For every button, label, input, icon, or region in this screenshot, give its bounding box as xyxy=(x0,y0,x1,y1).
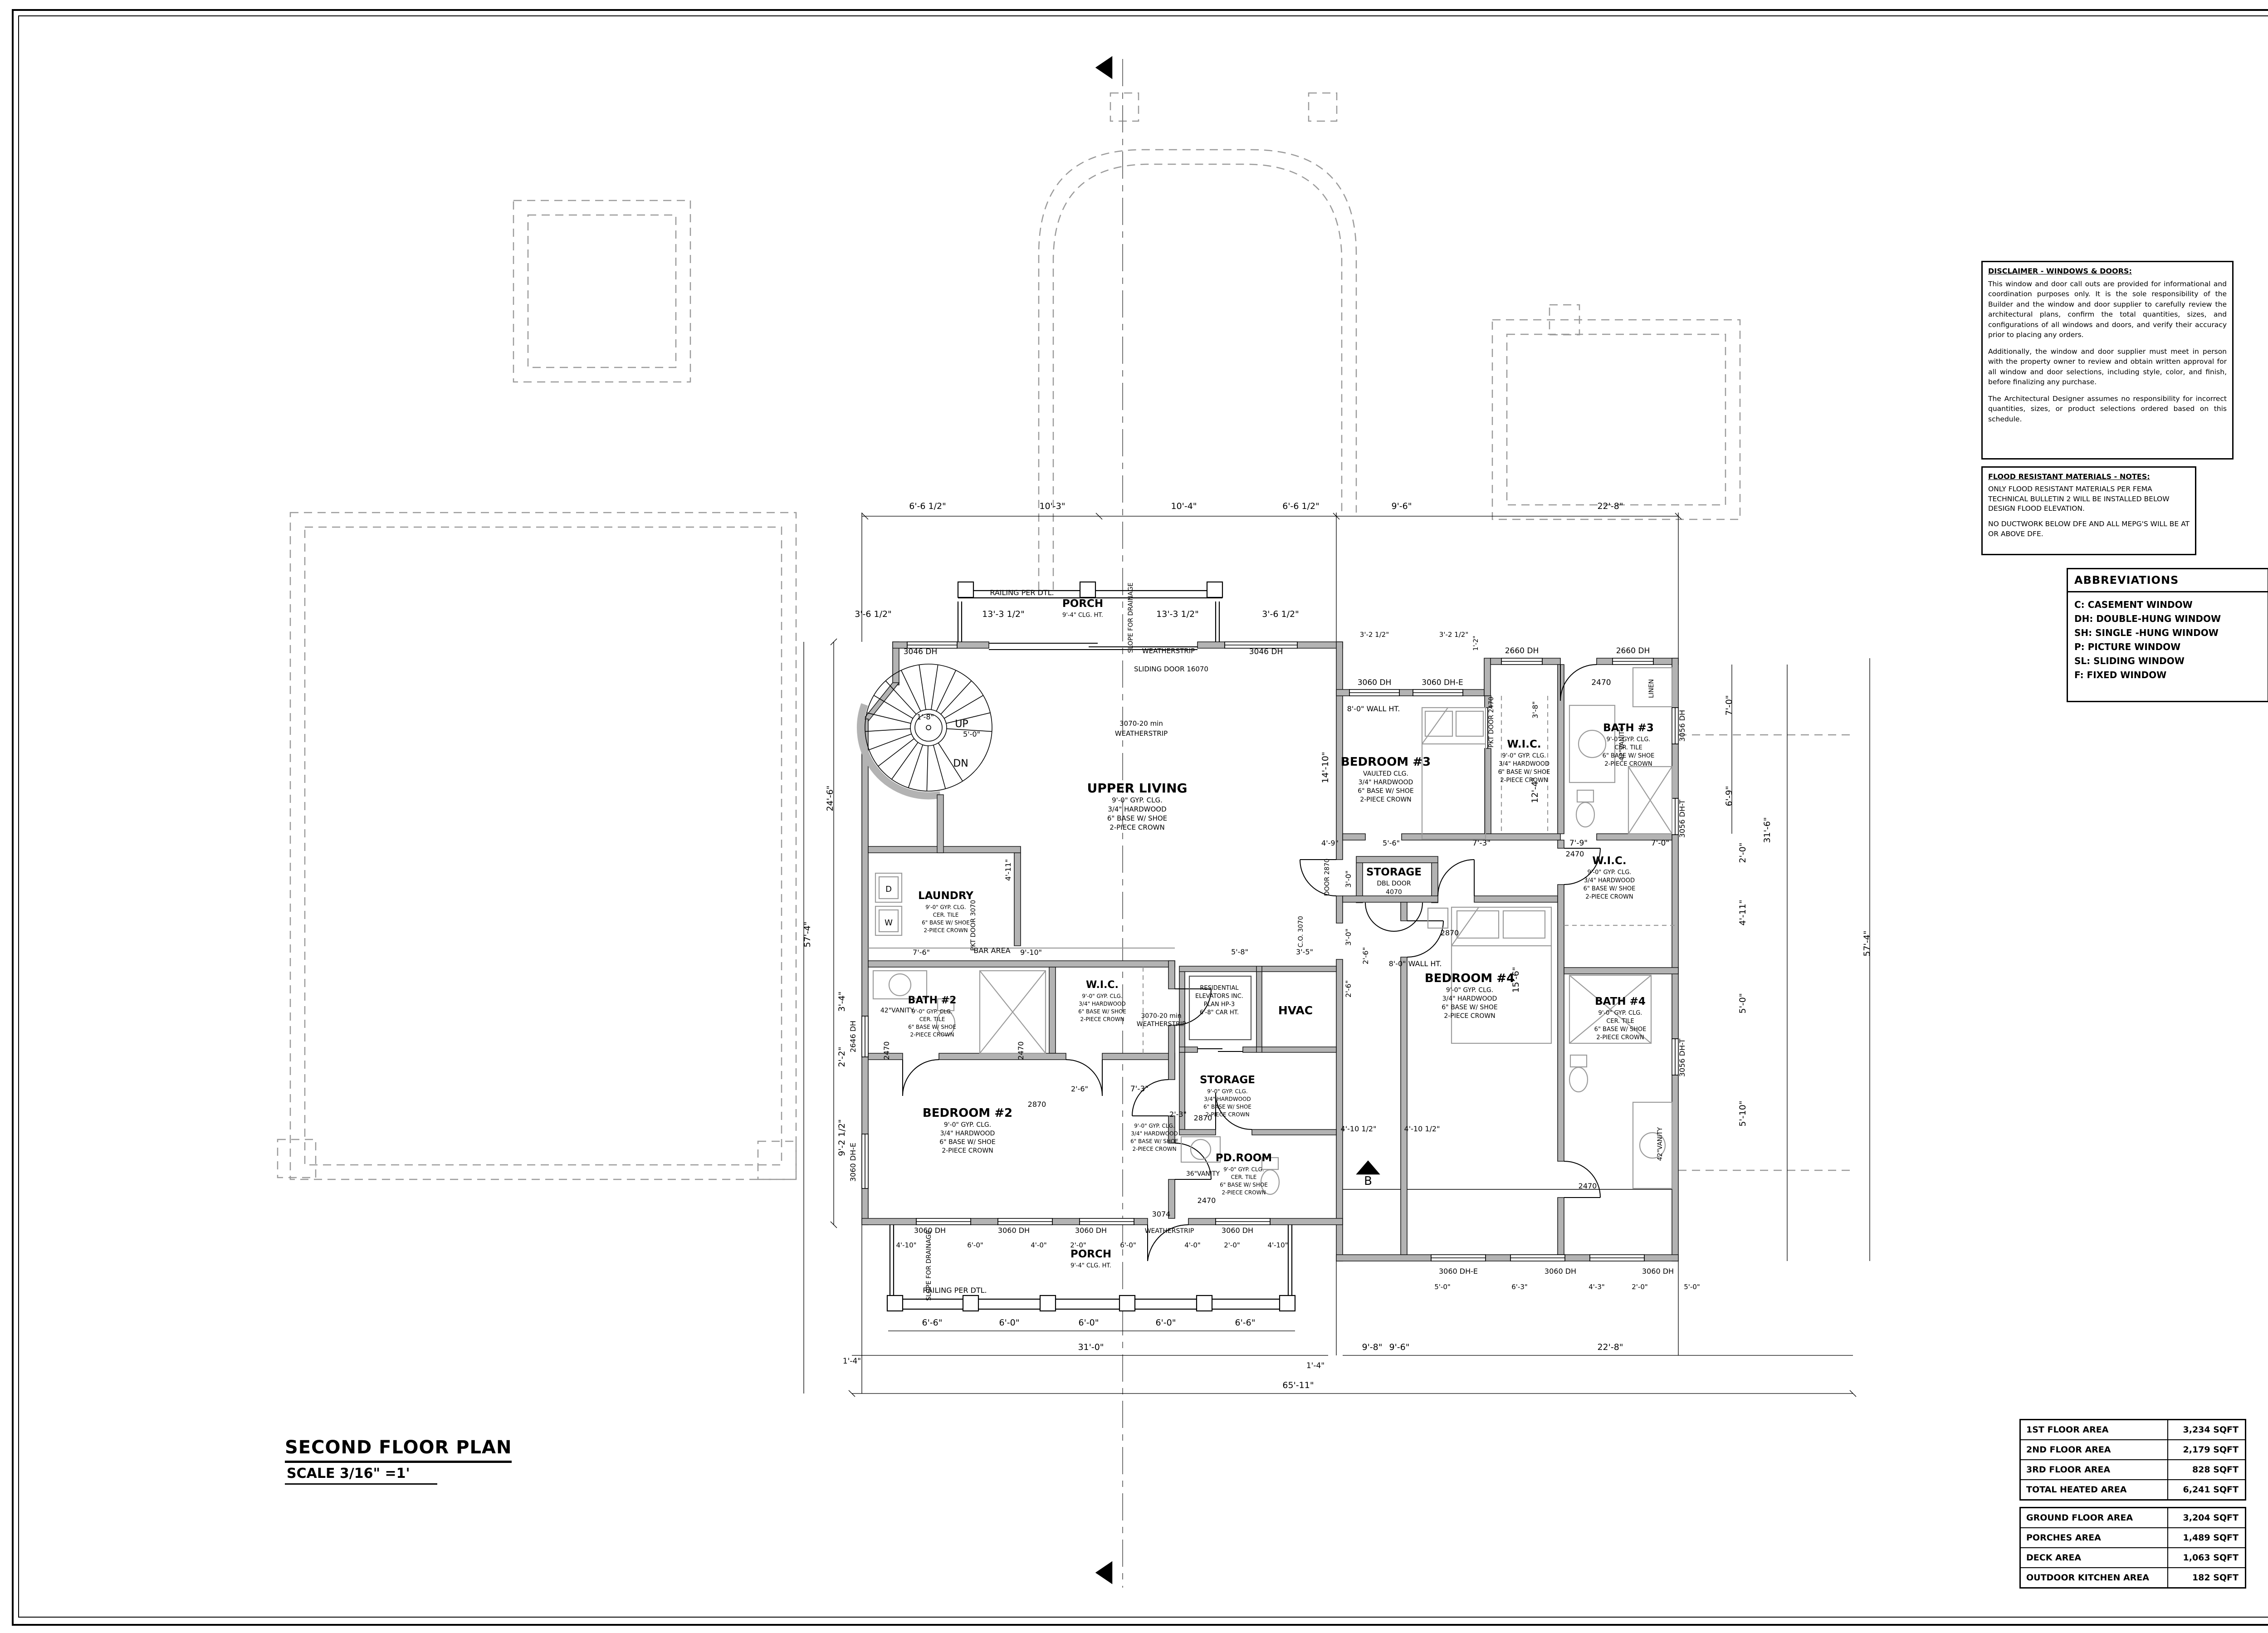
area-label: DECK AREA xyxy=(2021,1548,2168,1567)
plan-label: 42"VANITY xyxy=(1657,1127,1664,1161)
porch-posts xyxy=(887,582,1295,1311)
plan-label: 9'-0" GYP. CLG. xyxy=(925,904,966,910)
plan-label: 7'-9" xyxy=(1569,839,1588,848)
plan-label: BEDROOM #4 xyxy=(1425,972,1515,985)
plan-label: 6" BASE W/ SHOE xyxy=(1220,1182,1268,1188)
plan-label: W xyxy=(885,918,893,928)
plan-label: D xyxy=(885,885,892,894)
plan-label: WEATHERSTRIP xyxy=(1115,729,1168,738)
plan-label: 18 xyxy=(943,768,955,779)
plan-label: 4'-10" xyxy=(896,1241,916,1249)
plan-label: 4'-0" xyxy=(1031,1241,1047,1249)
plan-label: 57'-4" xyxy=(802,921,812,947)
area-value: 3,234 SQFT xyxy=(2168,1425,2245,1435)
plan-label: 3056 DH-T xyxy=(1678,800,1686,838)
plan-label: 6" BASE W/ SHOE xyxy=(1358,787,1413,795)
plan-label: 3 xyxy=(965,690,971,701)
plan-label: 5'-0" xyxy=(963,730,980,738)
plan-label: 4070 xyxy=(1386,889,1402,896)
plan-label: 6'-0" xyxy=(967,1241,983,1249)
disclaimer-box: DISCLAIMER - WINDOWS & DOORS: This windo… xyxy=(1981,261,2234,460)
plan-label: 7'-0" xyxy=(1651,839,1669,848)
plan-label: 31'-6" xyxy=(1762,817,1772,843)
plan-title: SECOND FLOOR PLAN xyxy=(285,1437,512,1463)
plan-label: 6'-0" xyxy=(1079,1318,1099,1328)
area-label: PORCHES AREA xyxy=(2021,1528,2168,1547)
plan-label: 7'-3" xyxy=(1472,839,1491,848)
plan-label: 3'-0" xyxy=(1344,870,1353,888)
plan-label: 2470 xyxy=(1566,850,1584,858)
plan-label: 13 xyxy=(878,747,890,758)
plan-label: PLAN HP-3 xyxy=(1204,1001,1235,1008)
plan-label: 2660 DH xyxy=(1505,646,1539,655)
disclaimer-title: DISCLAIMER - WINDOWS & DOORS: xyxy=(1988,267,2227,275)
plan-label: 6'-6" xyxy=(922,1318,943,1328)
plan-label: 7'-3" xyxy=(1130,1085,1149,1094)
plan-label: 14'-10" xyxy=(1320,752,1330,783)
plan-label: 6" BASE W/ SHOE xyxy=(1498,769,1550,776)
plan-label: 3060 DH xyxy=(1545,1267,1576,1276)
plan-label: 6'-8" CAR HT. xyxy=(1200,1009,1239,1016)
plan-label: W.I.C. xyxy=(1507,738,1541,750)
plan-label: 3060 DH xyxy=(1642,1267,1674,1276)
area-table-row: OUTDOOR KITCHEN AREA182 SQFT xyxy=(2021,1568,2245,1587)
abbreviation-item: P: PICTURE WINDOW xyxy=(2074,640,2261,654)
plan-label: 2470 xyxy=(882,1041,891,1060)
plan-label: UP xyxy=(955,719,968,730)
plan-label: 8'-0" WALL HT. xyxy=(1347,704,1400,713)
plan-label: 9'-4" CLG. HT. xyxy=(1070,1262,1111,1269)
area-value: 6,241 SQFT xyxy=(2168,1485,2245,1495)
plan-label: 6'-9" xyxy=(1724,786,1734,807)
abbreviation-item: SH: SINGLE -HUNG WINDOW xyxy=(2074,626,2261,640)
plan-label: CER. TILE xyxy=(1614,744,1642,751)
plan-label: 2 xyxy=(973,703,978,714)
plan-label: 3060 DH xyxy=(1222,1226,1253,1235)
plan-label: 4'-3" xyxy=(1589,1283,1605,1291)
area-label: OUTDOOR KITCHEN AREA xyxy=(2021,1568,2168,1587)
plan-label: ELEVATORS INC. xyxy=(1195,993,1243,1000)
spiral-stair: 123456789101112131415161718 xyxy=(865,664,992,791)
plan-title-block: SECOND FLOOR PLAN SCALE 3/16" =1' xyxy=(285,1437,512,1485)
plan-label: 6" BASE W/ SHOE xyxy=(1130,1138,1178,1144)
plan-label: 3'-4" xyxy=(837,992,847,1012)
plan-label: 9'-0" GYP. CLG. xyxy=(1502,753,1546,759)
plan-label: 9'-10" xyxy=(1020,948,1042,957)
area-label: TOTAL HEATED AREA xyxy=(2021,1480,2168,1499)
plan-label: STORAGE xyxy=(1366,866,1422,878)
plan-label: 9'-0" GYP. CLG. xyxy=(912,1008,952,1015)
plan-label: 3'-6 1/2" xyxy=(855,609,892,619)
plan-label: 2470 xyxy=(1017,1041,1025,1060)
area-table-row: 1ST FLOOR AREA3,234 SQFT xyxy=(2021,1420,2245,1440)
plan-label: 5 xyxy=(940,674,946,684)
plan-label: 3046 DH xyxy=(1249,647,1283,656)
plan-label: 10'-4" xyxy=(1171,501,1197,511)
plan-label: 2-PIECE CROWN xyxy=(1360,796,1411,803)
plan-label: 3'-2 1/2" xyxy=(1360,631,1389,639)
plan-label: PKT DOOR 2470 xyxy=(1488,697,1495,748)
plan-label: 2870 xyxy=(1441,929,1459,937)
plan-label: 3/4" HARDWOOD xyxy=(1108,805,1166,813)
plan-label: 6" BASE W/ SHOE xyxy=(1078,1008,1126,1015)
plan-label: 1'-4" xyxy=(843,1357,861,1366)
plan-label: 7 xyxy=(911,674,917,684)
area-table-row: TOTAL HEATED AREA6,241 SQFT xyxy=(2021,1480,2245,1499)
plan-label: BEDROOM #3 xyxy=(1341,755,1431,769)
plan-label: UPPER LIVING xyxy=(1087,781,1188,796)
plan-label: 2-PIECE CROWN xyxy=(1585,894,1633,900)
area-table-row: 3RD FLOOR AREA828 SQFT xyxy=(2021,1460,2245,1480)
plan-label: 9'-0" GYP. CLG. xyxy=(944,1121,991,1129)
plan-label: 22'-8" xyxy=(1597,1342,1623,1352)
area-table-row: GROUND FLOOR AREA3,204 SQFT xyxy=(2021,1508,2245,1528)
area-table-row: PORCHES AREA1,489 SQFT xyxy=(2021,1528,2245,1548)
plan-label: 3'-0" xyxy=(1344,929,1353,946)
plan-label: 4'-10 1/2" xyxy=(1404,1125,1440,1133)
plan-label: 9'-0" GYP. CLG. xyxy=(1082,993,1122,999)
plan-label: 3056 DH xyxy=(1678,710,1686,742)
plan-label: 3060 DH xyxy=(998,1226,1030,1235)
plan-label: 9'-2 1/2" xyxy=(837,1119,847,1156)
disclaimer-p2: Additionally, the window and door suppli… xyxy=(1988,347,2227,387)
plan-label: 12 xyxy=(873,733,885,743)
plan-label: PKT DOOR 3070 xyxy=(970,900,977,951)
plan-label: 3/4" HARDWOOD xyxy=(1359,779,1413,786)
plan-label: 9'-0" GYP. CLG. xyxy=(1446,987,1493,994)
plan-label: 2-PIECE CROWN xyxy=(942,1147,993,1154)
plan-label: 2-PIECE CROWN xyxy=(1110,823,1164,831)
stair-wall-edge xyxy=(937,795,943,853)
plan-label: HVAC xyxy=(1278,1004,1313,1017)
plan-label: CER. TILE xyxy=(933,912,959,918)
plan-label: 4'-0" xyxy=(1184,1241,1201,1249)
plan-label: 6" BASE W/ SHOE xyxy=(1442,1004,1497,1011)
plan-label: 2'-2" xyxy=(837,1047,847,1067)
plan-label: 13'-3 1/2" xyxy=(982,609,1025,619)
plan-label: 2-PIECE CROWN xyxy=(1222,1189,1266,1196)
plan-label: DOOR 2870 xyxy=(1324,859,1331,896)
plan-label: 5'-0" xyxy=(1738,993,1748,1014)
plan-label: 2'-0" xyxy=(1632,1283,1648,1291)
plan-label: BAR AREA xyxy=(973,946,1010,955)
area-value: 1,063 SQFT xyxy=(2168,1553,2245,1563)
plan-label: 2-PIECE CROWN xyxy=(924,927,968,934)
area-value: 3,204 SQFT xyxy=(2168,1513,2245,1523)
plan-label: 36"VANITY xyxy=(1186,1170,1220,1178)
plan-label: BEDROOM #2 xyxy=(923,1106,1012,1120)
plan-label: CER. TILE xyxy=(1231,1174,1257,1180)
plan-label: 3/4" HARDWOOD xyxy=(1442,995,1497,1002)
plan-label: 5'-0" xyxy=(1684,1283,1700,1291)
flood-title: FLOOD RESISTANT MATERIALS - NOTES: xyxy=(1988,472,2190,481)
area-value: 182 SQFT xyxy=(2168,1573,2245,1583)
abbreviation-item: F: FIXED WINDOW xyxy=(2074,668,2261,682)
plan-label: 3070-20 min xyxy=(1119,719,1163,728)
disclaimer-p3: The Architectural Designer assumes no re… xyxy=(1988,394,2227,424)
plan-label: 3/4" HARDWOOD xyxy=(1131,1130,1178,1137)
plan-label: 2470 xyxy=(1579,1182,1597,1190)
plan-label: 3'-8" xyxy=(1531,701,1540,719)
plan-label: 2'-0" xyxy=(1224,1241,1240,1249)
plan-label: 6'-0" xyxy=(1156,1318,1176,1328)
plan-label: 3060 DH xyxy=(1358,678,1392,687)
plan-label: 4'-9" xyxy=(1321,839,1339,847)
plan-label: 9'-6" xyxy=(1392,501,1412,511)
plan-label: 13'-3 1/2" xyxy=(1156,609,1199,619)
plan-label: 24'-6" xyxy=(825,785,835,811)
plan-label: C.O. 3070 xyxy=(1297,916,1305,947)
plan-label: 3070-20 min xyxy=(1141,1012,1181,1020)
plan-label: PORCH xyxy=(1062,598,1103,610)
plan-label: 3060 DH-E xyxy=(1439,1267,1478,1276)
plan-label: 1'-4" xyxy=(1306,1361,1325,1370)
plan-label: 57'-4" xyxy=(1862,930,1872,956)
plan-label: 6'-0" xyxy=(999,1318,1020,1328)
plan-label: 6'-3" xyxy=(1511,1283,1528,1291)
abbreviations-title: ABBREVIATIONS xyxy=(2068,569,2268,592)
plan-label: SLOPE FOR DRAINAGE xyxy=(925,1230,933,1301)
plan-label: 9'-0" GYP. CLG. xyxy=(1207,1088,1247,1095)
area-table-row: 2ND FLOOR AREA2,179 SQFT xyxy=(2021,1440,2245,1460)
plan-label: 65'-11" xyxy=(1282,1380,1314,1390)
plan-label: 2'-6" xyxy=(1361,947,1370,964)
plan-label: BATH #2 xyxy=(908,995,957,1006)
plan-label: BATH #4 xyxy=(1595,996,1646,1007)
area-label: 2ND FLOOR AREA xyxy=(2021,1440,2168,1459)
plan-label: 3074 xyxy=(1152,1210,1171,1218)
plan-label: 6" BASE W/ SHOE xyxy=(908,1024,956,1030)
plan-label: 4'-11" xyxy=(1004,859,1012,881)
plan-label: 9'-0" GYP. CLG. xyxy=(1588,869,1632,876)
plan-label: 3046 DH xyxy=(904,647,938,656)
plan-label: PD.ROOM xyxy=(1216,1152,1272,1164)
plan-label: 2'-0" xyxy=(1738,843,1748,863)
plan-label: 5'-0" xyxy=(1434,1283,1451,1291)
plan-label: 2-PIECE CROWN xyxy=(1444,1012,1495,1020)
plan-label: B xyxy=(1364,1174,1372,1188)
plan-label: 6" BASE W/ SHOE xyxy=(1584,885,1636,892)
plan-label: 3/4" HARDWOOD xyxy=(1204,1096,1251,1102)
plan-label: BATH #3 xyxy=(1603,722,1654,734)
area-label: GROUND FLOOR AREA xyxy=(2021,1508,2168,1527)
plan-scale: SCALE 3/16" =1' xyxy=(285,1466,437,1485)
plan-label: 9'-6" xyxy=(1389,1342,1410,1352)
plan-label: 1'-8" xyxy=(917,713,934,721)
plan-label: 6'-6 1/2" xyxy=(909,501,946,511)
plan-label: 4'-10" xyxy=(1267,1241,1288,1249)
plan-label: 5'-10" xyxy=(1738,1100,1748,1126)
plan-label: 6'-6 1/2" xyxy=(1282,501,1320,511)
plan-label: 9'-0" GYP. CLG. xyxy=(1607,736,1651,743)
plan-label: W.I.C. xyxy=(1592,855,1626,867)
plan-label: SLIDING DOOR 16070 xyxy=(1134,665,1208,673)
plan-label: 5'-6" xyxy=(1383,839,1400,847)
plan-label: 2'-6" xyxy=(1071,1085,1088,1093)
area-value: 828 SQFT xyxy=(2168,1465,2245,1475)
plan-label: 10'-3" xyxy=(1039,501,1065,511)
plan-label: 4'-11" xyxy=(1738,900,1748,925)
plan-label: DBL DOOR xyxy=(1377,880,1411,887)
abbreviations-box: ABBREVIATIONS C: CASEMENT WINDOWDH: DOUB… xyxy=(2067,568,2268,702)
plan-label: 2'-3" xyxy=(1169,1110,1187,1119)
plan-label: 7'-0" xyxy=(1724,695,1734,716)
plan-label: 1 xyxy=(976,718,982,728)
flood-p2: NO DUCTWORK BELOW DFE AND ALL MEPG'S WIL… xyxy=(1988,519,2190,539)
area-value: 1,489 SQFT xyxy=(2168,1533,2245,1543)
plan-label: VAULTED CLG. xyxy=(1363,770,1408,777)
plan-label: 9'-0" GYP. CLG. xyxy=(1112,796,1163,804)
heated-area-table: 1ST FLOOR AREA3,234 SQFT2ND FLOOR AREA2,… xyxy=(2019,1419,2246,1501)
plan-label: 2870 xyxy=(1028,1100,1046,1109)
plan-label: W.I.C. xyxy=(1086,979,1119,991)
plan-label: CER. TILE xyxy=(919,1016,945,1022)
plan-label: 14 xyxy=(887,759,899,770)
plan-label: 4'-10 1/2" xyxy=(1341,1125,1377,1133)
floor-plan: 123456789101112131415161718 6'-6 1/2"10'… xyxy=(0,0,2268,1633)
plan-label: 9'-0" GYP. CLG. xyxy=(1223,1166,1264,1173)
drawing-sheet: 123456789101112131415161718 6'-6 1/2"10'… xyxy=(0,0,2268,1633)
plan-label: 3'-6 1/2" xyxy=(1262,609,1299,619)
plan-label: RAILING PER DTL. xyxy=(990,588,1054,597)
plan-label: 3056 DH-T xyxy=(1678,1039,1686,1077)
plan-label: 2646 DH xyxy=(849,1021,857,1052)
plan-label: 16 xyxy=(914,772,926,783)
flood-p1: ONLY FLOOD RESISTANT MATERIALS PER FEMA … xyxy=(1988,484,2190,514)
plan-label: SLOPE FOR DRAINAGE xyxy=(1127,582,1134,653)
plan-label: 6'-0" xyxy=(1120,1241,1136,1249)
plan-label: 8'-0" WALL HT. xyxy=(1389,959,1442,968)
plan-label: 6 xyxy=(925,671,931,682)
plan-label: 3'-5" xyxy=(1296,948,1313,956)
plan-label: 15 xyxy=(899,768,912,778)
area-label: 1ST FLOOR AREA xyxy=(2021,1420,2168,1439)
plan-label: 2-PIECE CROWN xyxy=(1596,1034,1644,1041)
plan-label: 1'-2" xyxy=(1472,636,1480,650)
plan-label: 2'-6" xyxy=(1344,980,1353,997)
plan-label: 2-PIECE CROWN xyxy=(910,1032,954,1038)
abbreviation-item: SL: SLIDING WINDOW xyxy=(2074,654,2261,668)
plan-label: 17 xyxy=(929,772,941,783)
plan-label: 2-PIECE CROWN xyxy=(1132,1146,1176,1152)
plan-label: 9'-4" CLG. HT. xyxy=(1062,612,1103,619)
plan-label: 7'-6" xyxy=(913,948,930,957)
disclaimer-p1: This window and door call outs are provi… xyxy=(1988,279,2227,340)
plan-label: 4 xyxy=(954,680,960,691)
plan-label: 2-PIECE CROWN xyxy=(1205,1111,1249,1118)
plan-label: 3/4" HARDWOOD xyxy=(1584,877,1635,884)
section-markers xyxy=(1096,57,1678,1583)
plan-label: PORCH xyxy=(1070,1248,1111,1260)
area-value: 2,179 SQFT xyxy=(2168,1445,2245,1455)
abbreviation-item: C: CASEMENT WINDOW xyxy=(2074,598,2261,612)
plan-label: 3'-2 1/2" xyxy=(1439,631,1468,639)
plan-label: RESIDENTIAL xyxy=(1200,985,1239,992)
area-table-row: DECK AREA1,063 SQFT xyxy=(2021,1548,2245,1568)
plan-label: 3/4" HARDWOOD xyxy=(1499,761,1549,768)
plan-label: 6" BASE W/ SHOE xyxy=(1603,753,1655,759)
plan-label: 3060 DH-E xyxy=(1422,678,1463,687)
plan-label: 2-PIECE CROWN xyxy=(1080,1016,1124,1022)
plan-label: DN xyxy=(953,758,968,769)
plan-label: 3060 DH xyxy=(1075,1226,1107,1235)
plan-label: WEATHERSTRIP xyxy=(1145,1227,1194,1235)
flood-notes-box: FLOOD RESISTANT MATERIALS - NOTES: ONLY … xyxy=(1981,466,2196,555)
plan-label: 3/4" HARDWOOD xyxy=(1079,1001,1125,1007)
abbreviation-item: DH: DOUBLE-HUNG WINDOW xyxy=(2074,612,2261,626)
plan-label: 2-PIECE CROWN xyxy=(1500,777,1548,784)
plan-label: 6" BASE W/ SHOE xyxy=(922,919,970,926)
plan-label: 2660 DH xyxy=(1616,646,1650,655)
plan-label: 6'-6" xyxy=(1235,1318,1256,1328)
plan-label: 2470 xyxy=(1198,1196,1216,1205)
plan-label: LAUNDRY xyxy=(918,890,973,902)
area-label: 3RD FLOOR AREA xyxy=(2021,1460,2168,1479)
plan-label: WEATHERSTRIP xyxy=(1137,1021,1186,1028)
plan-label: 3/4" HARDWOOD xyxy=(940,1130,995,1137)
plan-label: LINEN xyxy=(1648,679,1655,698)
other-area-table: GROUND FLOOR AREA3,204 SQFTPORCHES AREA1… xyxy=(2019,1507,2246,1589)
plan-label: WEATHERSTRIP xyxy=(1142,647,1195,655)
plan-label: 6" BASE W/ SHOE xyxy=(939,1139,995,1146)
plan-label: 31'-0" xyxy=(1078,1342,1104,1352)
plan-label: 9'-0" GYP. CLG. xyxy=(1134,1123,1174,1129)
plan-label: 6" BASE W/ SHOE xyxy=(1203,1104,1251,1110)
plan-label: 5'-8" xyxy=(1231,948,1248,956)
elevator-door xyxy=(1198,1049,1243,1051)
plan-label: 6" BASE W/ SHOE xyxy=(1594,1026,1647,1033)
plan-label: 2470 xyxy=(1591,678,1611,687)
plan-label: CER. TILE xyxy=(1606,1018,1634,1025)
plan-label: 2-PIECE CROWN xyxy=(1604,761,1652,768)
plan-label: 9'-0" GYP. CLG. xyxy=(1598,1010,1642,1017)
plan-label: 9'-8" xyxy=(1362,1342,1383,1352)
plan-label: 6" BASE W/ SHOE xyxy=(1107,814,1167,822)
plan-label: 3060 DH-E xyxy=(849,1143,857,1182)
plan-label: 11 xyxy=(872,718,884,728)
plan-label: 42"VANITY xyxy=(880,1007,914,1014)
plan-label: STORAGE xyxy=(1200,1074,1255,1086)
plan-label: 22'-8" xyxy=(1597,501,1623,511)
